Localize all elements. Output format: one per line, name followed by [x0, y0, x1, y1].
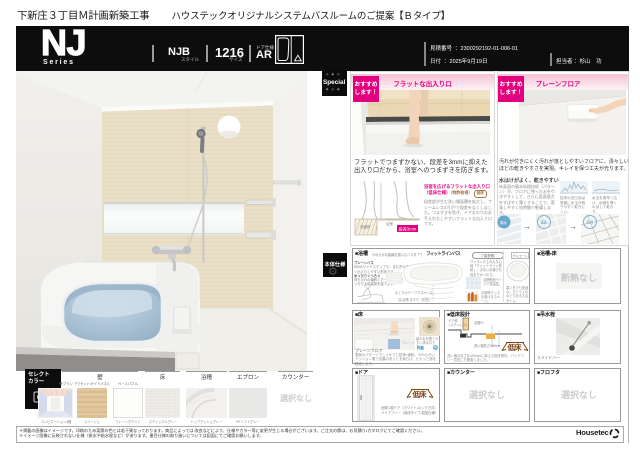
- svg-text:速乾: 速乾: [541, 220, 548, 225]
- svg-text:洗面所: 洗面所: [360, 224, 371, 229]
- svg-text:低床: 低床: [412, 389, 427, 399]
- svg-text:防汚: 防汚: [587, 220, 594, 225]
- svg-text:プレーン: プレーン: [401, 340, 415, 345]
- svg-text:浴室FL: 浴室FL: [474, 320, 484, 325]
- svg-text:段差3mm: 段差3mm: [399, 226, 417, 233]
- svg-text:洗い場高さ400mm: 洗い場高さ400mm: [474, 343, 501, 348]
- svg-text:親水: 親水: [500, 220, 507, 225]
- svg-text:（ステンレス）: （ステンレス）: [447, 322, 469, 327]
- svg-text:浴室: 浴室: [386, 221, 394, 226]
- svg-text:低床: 低床: [507, 342, 522, 352]
